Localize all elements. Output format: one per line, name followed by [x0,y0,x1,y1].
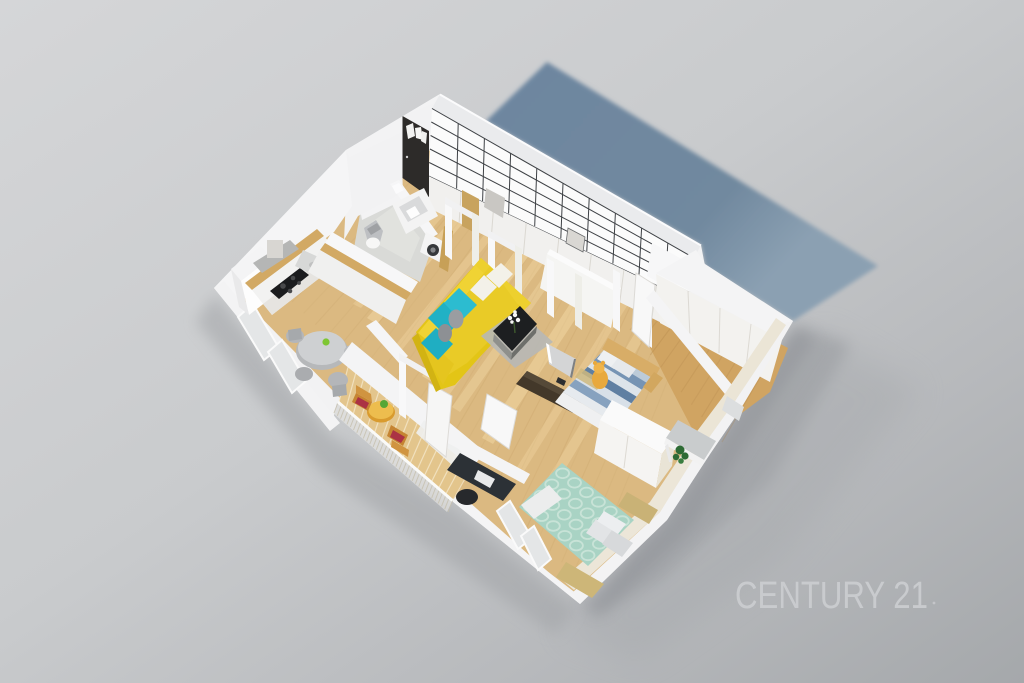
svg-text:CENTURY 21: CENTURY 21 [735,575,928,617]
